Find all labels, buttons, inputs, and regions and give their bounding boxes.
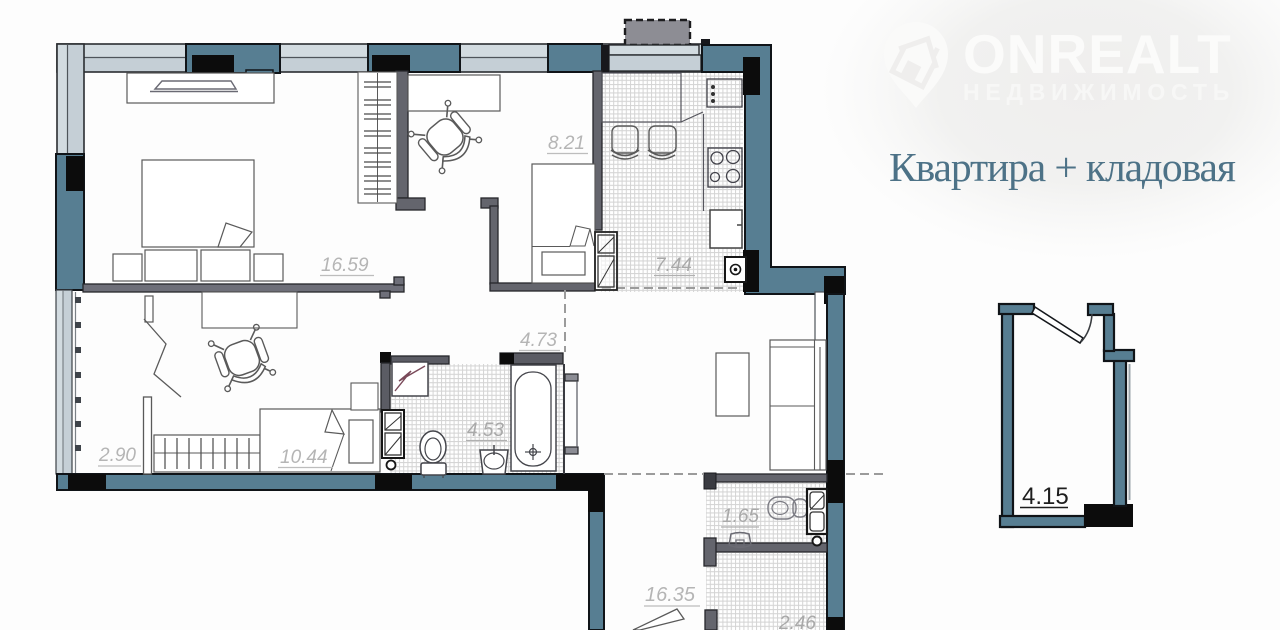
- svg-text:4.53: 4.53: [467, 420, 504, 441]
- svg-text:2.90: 2.90: [98, 445, 136, 466]
- svg-text:4.73: 4.73: [520, 330, 557, 351]
- svg-text:16.35: 16.35: [645, 584, 696, 606]
- svg-text:16.59: 16.59: [321, 255, 369, 276]
- svg-text:4.15: 4.15: [1022, 483, 1069, 510]
- svg-text:НЕДВИЖИМОСТЬ: НЕДВИЖИМОСТЬ: [963, 79, 1235, 105]
- svg-text:ONREALT: ONREALT: [963, 23, 1232, 85]
- svg-text:7.44: 7.44: [655, 255, 692, 276]
- svg-text:10.44: 10.44: [280, 447, 328, 468]
- svg-text:8.21: 8.21: [548, 133, 585, 154]
- svg-text:1.65: 1.65: [722, 506, 759, 527]
- svg-text:2.46: 2.46: [778, 613, 816, 630]
- svg-text:Квартира + кладовая: Квартира + кладовая: [889, 144, 1236, 190]
